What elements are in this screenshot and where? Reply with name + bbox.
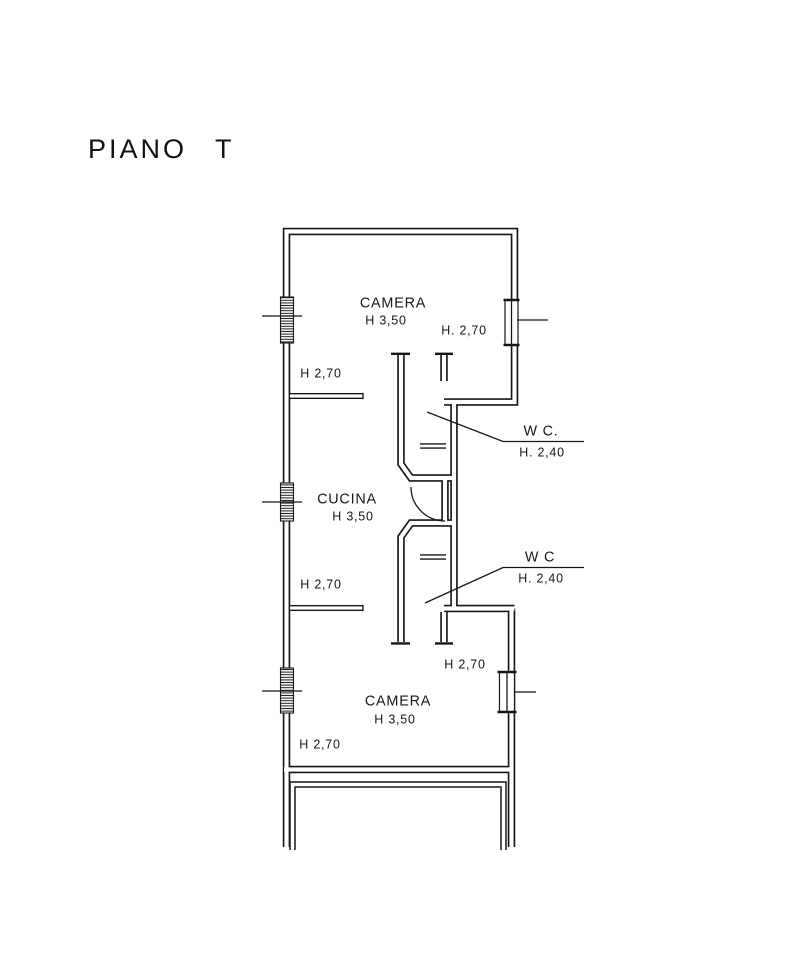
height-label-camera-top-right: H. 2,70 — [441, 323, 487, 338]
window-left-bottom — [262, 668, 302, 713]
height-label-camera-bottom-right: H 2,70 — [444, 657, 485, 672]
plan-title: PIANO T — [88, 134, 235, 165]
window-left-middle — [262, 483, 302, 521]
room-label-camera-bottom: CAMERA — [365, 693, 431, 710]
room-label-cucina: CUCINA — [317, 491, 377, 508]
height-label-cucina: H 3,50 — [332, 509, 373, 524]
height-label-cucina-left: H 2,70 — [300, 577, 341, 592]
lower-strip-walls — [293, 785, 504, 851]
height-label-camera-bottom-left: H 2,70 — [299, 737, 340, 752]
height-label-camera-top-left: H 2,70 — [300, 366, 341, 381]
room-label-camera-top: CAMERA — [360, 295, 426, 312]
window-left-top — [262, 297, 302, 343]
floor-plan-page: PIANO T CAMERA H 3,50 H. 2,70 H 2,70 CUC… — [0, 0, 812, 958]
height-label-camera-top: H 3,50 — [365, 313, 406, 328]
height-label-wc-top: H. 2,40 — [519, 445, 565, 460]
room-label-wc-top: W C. — [523, 423, 558, 440]
height-label-wc-bottom: H. 2,40 — [518, 571, 564, 586]
door-swing-arc — [411, 487, 445, 521]
height-label-camera-bottom: H 3,50 — [374, 712, 415, 727]
window-right-top — [504, 300, 549, 345]
window-right-bottom — [498, 672, 537, 712]
room-label-wc-bottom: W C — [525, 549, 555, 566]
